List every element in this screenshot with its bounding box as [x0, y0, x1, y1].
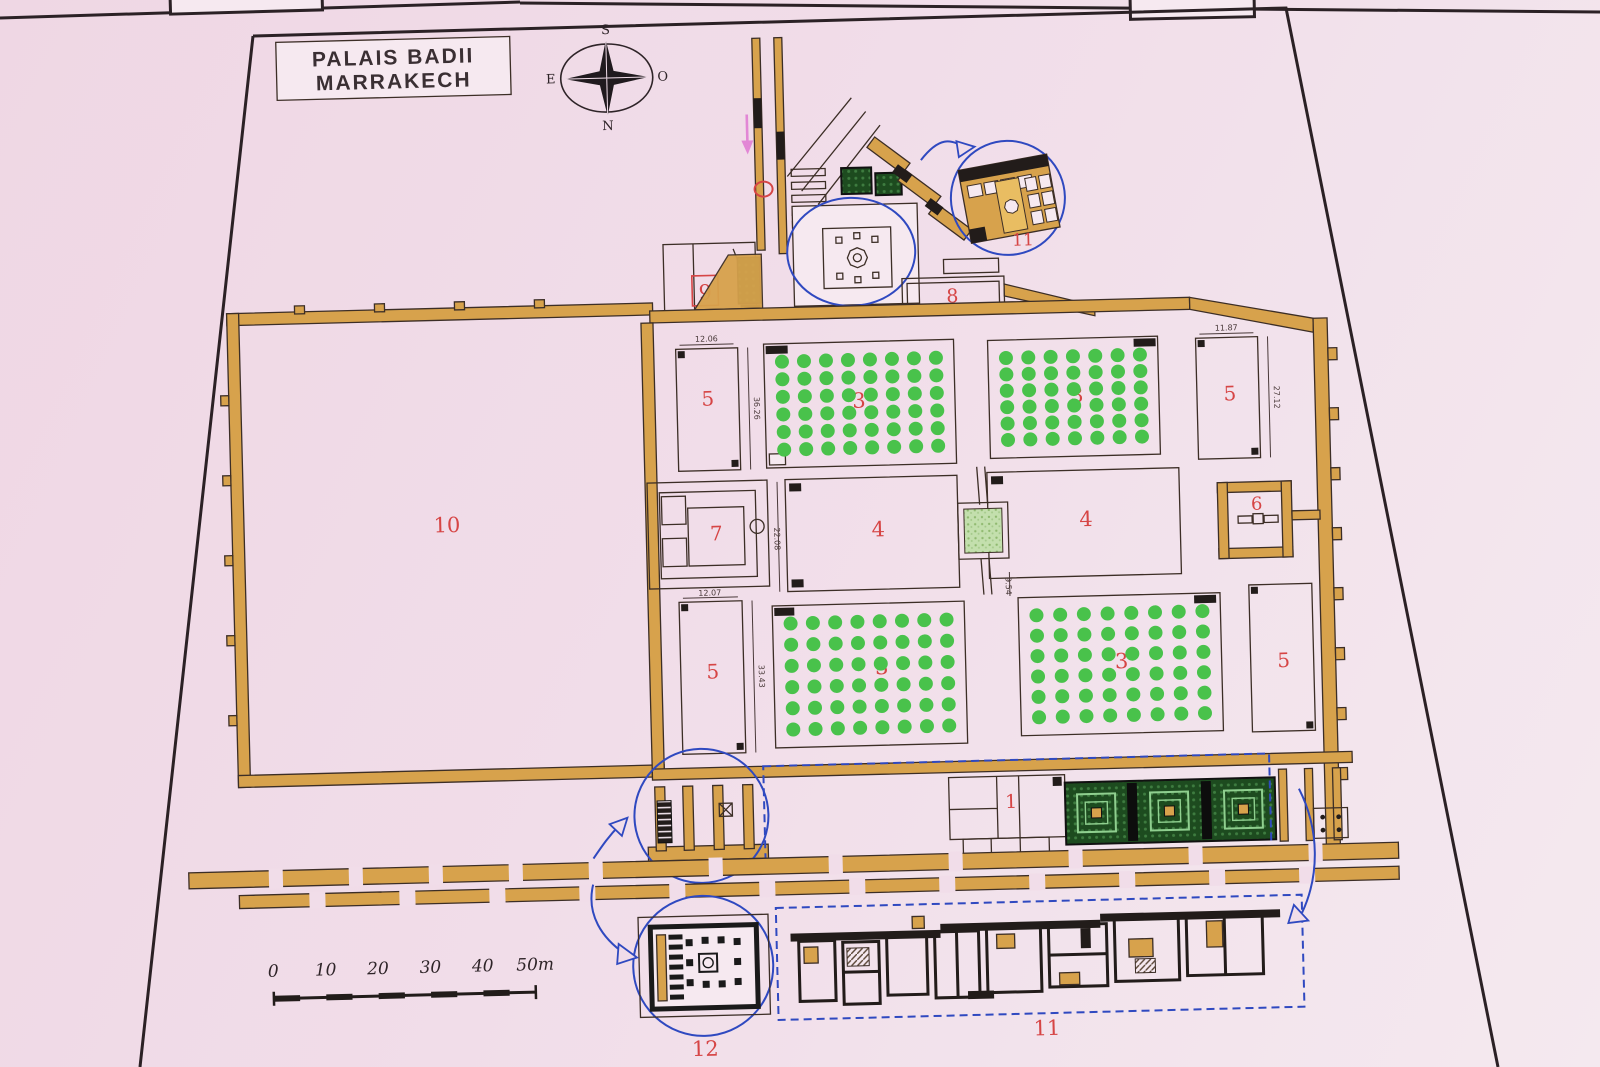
tree-dot [1044, 382, 1058, 396]
scale-bar-segment [483, 990, 509, 997]
detail-room [887, 936, 928, 995]
tree-dot [1022, 367, 1036, 381]
area-label-6: 6 [1251, 494, 1263, 515]
wall-buttress [1331, 468, 1340, 480]
wall-buttress [294, 306, 304, 314]
tree-dot [896, 656, 910, 670]
tree-dot [1112, 414, 1126, 428]
garden-fountain [1238, 804, 1248, 814]
scale-bar-tick-label: 20 [366, 959, 389, 980]
wall-buttress [229, 716, 237, 726]
tree-dot [1077, 627, 1091, 641]
tree-dot [1150, 687, 1164, 701]
tree-dot [1101, 647, 1115, 661]
compass-south-label: S [601, 23, 610, 38]
column-dot [717, 936, 724, 943]
tree-dot [1134, 397, 1148, 411]
inset-room [967, 184, 983, 198]
north-pavilion [792, 203, 919, 306]
tree-dot [852, 678, 866, 692]
column-bar [669, 944, 683, 949]
tree-dot [808, 722, 822, 736]
tree-dot [776, 390, 790, 404]
tree-dot [917, 613, 931, 627]
tree-dot [829, 658, 843, 672]
tree-dot [831, 721, 845, 735]
tree-dot [1022, 383, 1036, 397]
rampart-gap [1068, 848, 1083, 868]
orchard-3-ne: 3 [988, 336, 1161, 458]
tree-dot [931, 421, 945, 435]
tree-dot [1055, 669, 1069, 683]
tree-dot [1029, 608, 1043, 622]
rampart-gap [759, 880, 775, 897]
tree-dot [806, 637, 820, 651]
column-dot [686, 939, 693, 946]
tree-dot [785, 680, 799, 694]
tree-dot [1054, 628, 1068, 642]
tree-dot [885, 352, 899, 366]
tree-dot [808, 701, 822, 715]
tree-dot [1135, 429, 1149, 443]
tree-dot [843, 423, 857, 437]
tree-dot [920, 719, 934, 733]
column-dot [719, 980, 726, 987]
wall-buttress [221, 396, 229, 406]
map-title-line2: MARRAKECH [316, 68, 472, 95]
garden-fountain [1091, 808, 1101, 818]
tree-dot [999, 351, 1013, 365]
tree-dot [930, 403, 944, 417]
tree-dot [851, 636, 865, 650]
scale-bar-tick-label: 40 [471, 956, 494, 977]
rampart-gap [1029, 873, 1045, 890]
tree-dot [931, 439, 945, 453]
tree-dot [1088, 365, 1102, 379]
tree-dot [999, 367, 1013, 381]
tree-dot [886, 387, 900, 401]
tree-dot [1149, 666, 1163, 680]
tree-dot [1067, 415, 1081, 429]
rampart-gap [429, 864, 444, 884]
area-label-4: 4 [1079, 507, 1093, 531]
tree-dot [875, 699, 889, 713]
sunken-garden-strip [1065, 777, 1277, 844]
tree-dot [1197, 686, 1211, 700]
tree-dot [908, 386, 922, 400]
tree-dot [1110, 348, 1124, 362]
tree-dot [874, 678, 888, 692]
site-plan-panel: PALAIS BADII MARRAKECH S N E O 10 [0, 0, 1600, 1067]
tree-dot [1068, 431, 1082, 445]
rampart-gap [589, 860, 604, 880]
tree-dot [908, 404, 922, 418]
column-dot [703, 981, 710, 988]
tree-dot [864, 405, 878, 419]
orchard-3-se: 3 [1018, 593, 1223, 736]
compass-east-label: E [546, 72, 556, 87]
rampart-gap [849, 878, 865, 895]
tree-dot [939, 612, 953, 626]
wall-buttress [374, 304, 384, 312]
tree-dot [1045, 415, 1059, 429]
court-garden-patch [841, 167, 872, 194]
rampart-gap [269, 868, 284, 888]
area-label-5: 5 [1223, 381, 1236, 405]
tree-dot [786, 722, 800, 736]
orchard-3-nw: 3 [764, 339, 957, 468]
scale-bar: 010203040 50m [268, 955, 555, 1006]
tree-dot [1088, 349, 1102, 363]
tree-dot [887, 440, 901, 454]
wall-buttress [1329, 408, 1338, 420]
central-pools: 4 4 22.08 9.54 [771, 462, 1182, 602]
tree-dot [806, 616, 820, 630]
dim-basin-nw-length: 36.26 [752, 397, 762, 420]
tree-dot [1101, 627, 1115, 641]
scale-bar-tick-label: 10 [315, 960, 337, 981]
tree-dot [819, 353, 833, 367]
rampart-gap [948, 851, 963, 871]
tree-dot [1054, 648, 1068, 662]
tree-dot [775, 354, 789, 368]
tree-dot [863, 370, 877, 384]
tree-dot [786, 701, 800, 715]
scale-bar-segment [379, 992, 405, 999]
tree-dot [850, 615, 864, 629]
dim-basin-nw-width: 12.06 [695, 334, 718, 344]
column-dot [735, 978, 742, 985]
area-label-4: 4 [871, 517, 885, 541]
tree-dot [1172, 625, 1186, 639]
rampart-gap [349, 866, 364, 886]
tree-dot [852, 699, 866, 713]
tree-dot [1089, 398, 1103, 412]
column-dot [734, 938, 741, 945]
wall-buttress [534, 300, 544, 308]
tree-dot [1021, 350, 1035, 364]
tree-dot [1149, 646, 1163, 660]
tree-dot [919, 677, 933, 691]
rampart-gap [708, 857, 723, 877]
tree-dot [1102, 688, 1116, 702]
wall-buttress [1334, 588, 1343, 600]
tree-dot [865, 423, 879, 437]
tree-dot [1023, 432, 1037, 446]
tree-dot [885, 369, 899, 383]
tree-dot [896, 677, 910, 691]
tree-dot [1043, 350, 1057, 364]
scale-bar-end-label: 50m [516, 955, 554, 976]
rampart-gap [828, 854, 843, 874]
column-dot [702, 937, 709, 944]
tree-dot [1090, 414, 1104, 428]
tree-dot [1173, 666, 1187, 680]
tree-dot [1111, 381, 1125, 395]
tree-dot [886, 404, 900, 418]
compass-rose-icon: S N E O [545, 21, 670, 135]
tree-dot [1198, 706, 1212, 720]
column-dot [734, 958, 741, 965]
tree-dot [830, 700, 844, 714]
tree-dot [853, 721, 867, 735]
enclosure-10: 10 [218, 297, 664, 788]
tree-dot [907, 369, 921, 383]
panel-edge-line [520, 3, 1600, 12]
rampart-gap [1188, 845, 1203, 865]
tree-dot [1173, 645, 1187, 659]
tree-dot [1133, 347, 1147, 361]
column-dot [687, 979, 694, 986]
area-label-11-inset: 11 [1012, 230, 1034, 251]
tree-dot [895, 614, 909, 628]
detail-inset-11: 11 [920, 138, 1066, 257]
wall-buttress [1337, 708, 1346, 720]
scale-bar-tick-label: 30 [419, 957, 441, 978]
title-box: PALAIS BADII MARRAKECH [276, 36, 511, 100]
column-dot [686, 959, 693, 966]
koubba-7: 7 [647, 480, 770, 589]
area-label-5: 5 [1277, 648, 1290, 672]
compass-north-label: N [602, 119, 614, 134]
tree-dot [1090, 431, 1104, 445]
wall-buttress [1328, 348, 1337, 360]
column-bar [669, 974, 683, 979]
column-bar [668, 934, 682, 939]
tree-dot [843, 441, 857, 455]
tree-dot [1066, 349, 1080, 363]
tree-dot [1126, 687, 1140, 701]
tree-dot [820, 406, 834, 420]
basin-5-se: 5 [1249, 583, 1316, 732]
garden-fountain [1164, 806, 1174, 816]
tree-dot [841, 370, 855, 384]
tree-dot [784, 659, 798, 673]
tree-dot [1133, 364, 1147, 378]
tree-dot [798, 407, 812, 421]
rampart-gap [939, 875, 955, 892]
tree-dot [1134, 413, 1148, 427]
tree-dot [940, 655, 954, 669]
tree-dot [1053, 608, 1067, 622]
column-bar [670, 984, 684, 989]
column-bar [669, 964, 683, 969]
inset-room [1025, 177, 1038, 192]
inset-room [1038, 174, 1051, 189]
tree-dot [1125, 626, 1139, 640]
inset-room [1045, 207, 1058, 222]
dim-pool-width: 22.08 [772, 527, 782, 550]
rooms-9: 9 [663, 242, 763, 318]
tree-dot [1030, 649, 1044, 663]
scale-bar-segment [274, 995, 300, 1002]
wall-buttress [227, 636, 235, 646]
tree-dot [821, 441, 835, 455]
tree-dot [1001, 433, 1015, 447]
dim-basin-sw-length: 33.43 [757, 665, 767, 688]
tree-dot [1127, 708, 1141, 722]
tree-dot [929, 368, 943, 382]
detail-rect-11: 11 [776, 895, 1305, 1047]
rampart-gap [509, 862, 524, 882]
tree-dot [828, 615, 842, 629]
tree-dot [1100, 606, 1114, 620]
tree-dot [1089, 381, 1103, 395]
tree-dot [1195, 604, 1209, 618]
tree-dot [1032, 710, 1046, 724]
wall-buttress [454, 302, 464, 310]
stair-bar [792, 195, 826, 203]
adjacent-panel-edges [0, 0, 1600, 19]
tree-dot [1066, 366, 1080, 380]
tree-dot [918, 655, 932, 669]
tree-dot [942, 697, 956, 711]
area-label-1: 1 [1005, 791, 1018, 813]
orchard-3-sw: 3 [772, 601, 968, 748]
tree-dot [1148, 605, 1162, 619]
tree-dot [1196, 624, 1210, 638]
tree-dot [909, 422, 923, 436]
dim-basin-ne-length: 27.12 [1272, 386, 1282, 409]
tree-dot [797, 354, 811, 368]
tree-dot [830, 679, 844, 693]
rampart-gap [1209, 869, 1225, 886]
tree-dot [918, 634, 932, 648]
entrance-arrow-head-icon [741, 140, 753, 154]
tree-dot [863, 352, 877, 366]
tree-dot [1148, 626, 1162, 640]
tree-dot [1030, 629, 1044, 643]
stair-bar [791, 169, 825, 177]
rampart-gap [669, 882, 685, 899]
tree-dot [1111, 364, 1125, 378]
tree-dot [873, 635, 887, 649]
entrance-corridor [739, 38, 787, 255]
area-label-5: 5 [706, 659, 719, 683]
scale-bar-tick-label: 0 [268, 962, 280, 982]
wall-buttress [1335, 648, 1344, 660]
wall-buttress [1332, 528, 1341, 540]
tree-dot [829, 636, 843, 650]
wall-buttress [225, 556, 233, 566]
basin-5-sw: 5 12.07 33.43 [679, 587, 768, 754]
detail-circle-12: 12 [631, 894, 775, 1062]
tree-dot [1079, 689, 1093, 703]
scale-bar-segment [431, 991, 457, 998]
tree-dot [1196, 645, 1210, 659]
tree-dot [887, 422, 901, 436]
compass-west-label: O [657, 69, 668, 84]
tree-dot [873, 614, 887, 628]
tree-dot [1000, 384, 1014, 398]
tree-dot [929, 351, 943, 365]
column-bar [670, 994, 684, 999]
tree-dot [798, 389, 812, 403]
tree-dot [1031, 669, 1045, 683]
rampart-gap [309, 891, 325, 908]
map-title-line1: PALAIS BADII [312, 44, 475, 71]
tree-dot [807, 679, 821, 693]
tree-dot [1124, 606, 1138, 620]
area-label-11-detail: 11 [1033, 1016, 1060, 1041]
tree-dot [1078, 648, 1092, 662]
tree-dot [1174, 707, 1188, 721]
south-ramparts [189, 840, 1400, 912]
dim-basin-sw-width: 12.07 [698, 588, 721, 598]
tree-dot [1056, 710, 1070, 724]
tree-dot [777, 425, 791, 439]
partial-title-box [169, 0, 322, 14]
tree-dot [940, 634, 954, 648]
basin-5-nw: 5 12.06 36.26 [675, 333, 762, 471]
north-complex [783, 95, 973, 308]
tree-dot [1103, 708, 1117, 722]
tree-dot [776, 407, 790, 421]
tree-dot [820, 389, 834, 403]
tree-dot [807, 658, 821, 672]
tree-dot [1150, 707, 1164, 721]
tree-dot [1031, 690, 1045, 704]
tree-dot [875, 720, 889, 734]
area-label-5: 5 [701, 386, 714, 410]
tree-dot [1172, 605, 1186, 619]
tree-dot [799, 442, 813, 456]
inset-room [1031, 210, 1044, 225]
tree-dot [930, 386, 944, 400]
tree-dot [942, 718, 956, 732]
tree-dot [819, 371, 833, 385]
tree-dot [1077, 607, 1091, 621]
tree-dot [865, 440, 879, 454]
tree-dot [897, 698, 911, 712]
tree-dot [1134, 380, 1148, 394]
tree-dot [1055, 689, 1069, 703]
basin-5-ne: 5 11.87 27.12 [1195, 322, 1282, 459]
tree-dot [895, 635, 909, 649]
tree-dot [783, 616, 797, 630]
tree-dot [907, 351, 921, 365]
area-label-7: 7 [710, 521, 723, 545]
wall-buttress [223, 476, 231, 486]
tree-dot [1197, 665, 1211, 679]
area-label-10: 10 [433, 513, 460, 538]
tree-dot [1102, 668, 1116, 682]
tree-dot [1000, 400, 1014, 414]
tree-dot [799, 424, 813, 438]
tree-dot [1079, 709, 1093, 723]
tree-dot [864, 387, 878, 401]
column-bar [669, 954, 683, 959]
tree-dot [1046, 432, 1060, 446]
rampart-gap [489, 887, 505, 904]
entrance-arrow-icon [747, 114, 748, 142]
dim-basin-ne-width: 11.87 [1215, 323, 1238, 333]
tree-dot [1044, 366, 1058, 380]
tree-dot [797, 372, 811, 386]
tree-dot [784, 638, 798, 652]
tree-dot [821, 424, 835, 438]
scale-bar-segment [326, 994, 352, 1001]
tree-dot [1112, 430, 1126, 444]
tree-dot [941, 676, 955, 690]
dim-pool-channel: 9.54 [1003, 577, 1012, 595]
tree-dot [909, 439, 923, 453]
tree-dot [898, 720, 912, 734]
inset-room [1042, 191, 1055, 206]
rampart-gap [399, 889, 415, 906]
tree-dot [919, 698, 933, 712]
tree-dot [841, 353, 855, 367]
